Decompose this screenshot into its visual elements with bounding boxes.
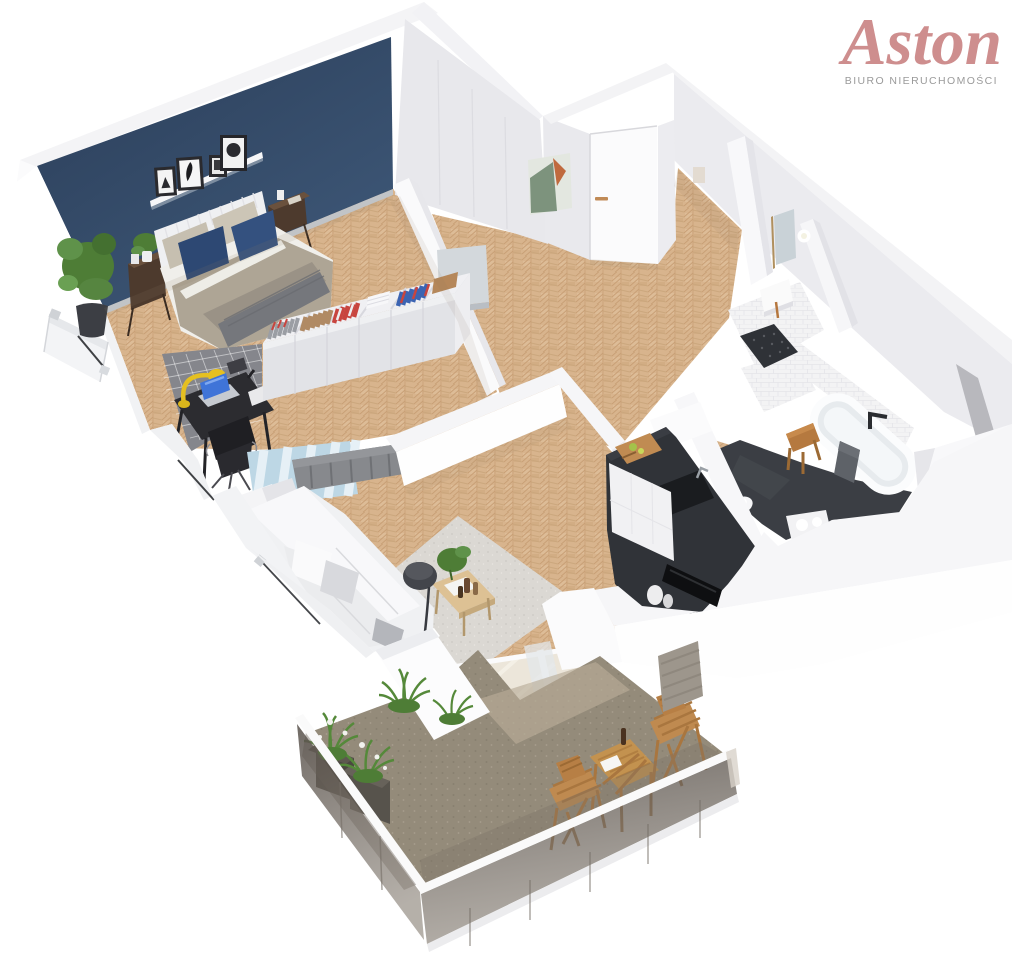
svg-text:Aston: Aston — [838, 5, 1002, 79]
svg-text:BIURO NIERUCHOMOŚCI: BIURO NIERUCHOMOŚCI — [845, 74, 998, 87]
